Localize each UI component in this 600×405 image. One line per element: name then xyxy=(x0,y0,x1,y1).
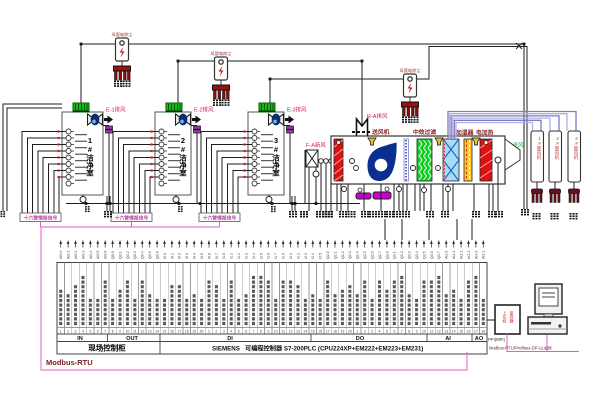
svg-text:AI3.1: AI3.1 xyxy=(482,251,486,259)
svg-text:Q0.6: Q0.6 xyxy=(155,251,159,259)
svg-text:I0.3: I0.3 xyxy=(185,253,189,259)
svg-text:1#管风机: 1#管风机 xyxy=(536,136,542,161)
svg-text:3: 3 xyxy=(75,329,77,333)
svg-text:2: 2 xyxy=(215,329,217,333)
svg-text:风管电除尘: 风管电除尘 xyxy=(400,67,421,74)
svg-text:3#管风机: 3#管风机 xyxy=(573,136,579,161)
svg-text:3: 3 xyxy=(371,329,373,333)
svg-text:3: 3 xyxy=(223,329,225,333)
svg-text:11: 11 xyxy=(430,329,434,333)
svg-text:5: 5 xyxy=(238,329,240,333)
svg-text:4: 4 xyxy=(379,329,381,333)
svg-text:AI2.3: AI2.3 xyxy=(467,251,471,259)
svg-text:I1.7: I1.7 xyxy=(274,253,278,259)
svg-text:I0.2: I0.2 xyxy=(178,253,182,259)
svg-text:8: 8 xyxy=(112,329,114,333)
svg-text:AI2.0: AI2.0 xyxy=(445,251,449,259)
svg-text:13: 13 xyxy=(296,329,300,333)
svg-text:1#洁净室: 1#洁净室 xyxy=(85,136,94,178)
svg-text:AI2.2: AI2.2 xyxy=(459,251,463,259)
svg-text:I2.1: I2.1 xyxy=(289,253,293,259)
svg-text:1: 1 xyxy=(60,329,62,333)
svg-text:17: 17 xyxy=(177,329,181,333)
svg-text:Q0.5: Q0.5 xyxy=(148,251,152,259)
svg-text:Q3.0: Q3.0 xyxy=(385,251,389,259)
svg-text:Q3.7: Q3.7 xyxy=(437,251,441,259)
svg-text:19: 19 xyxy=(192,329,196,333)
svg-text:I1.1: I1.1 xyxy=(230,253,234,259)
svg-text:上位机: 上位机 xyxy=(503,310,508,324)
svg-text:Q3.2: Q3.2 xyxy=(400,251,404,259)
svg-text:2#管风机: 2#管风机 xyxy=(554,136,560,161)
svg-text:14: 14 xyxy=(452,329,456,333)
svg-text:9: 9 xyxy=(416,329,418,333)
svg-text:8: 8 xyxy=(260,329,262,333)
svg-text:Q0.3: Q0.3 xyxy=(133,251,137,259)
svg-text:I1.0: I1.0 xyxy=(222,253,226,259)
svg-text:2: 2 xyxy=(364,329,366,333)
svg-text:18: 18 xyxy=(333,329,337,333)
svg-text:I2.4: I2.4 xyxy=(311,253,315,259)
svg-text:AI3.0: AI3.0 xyxy=(474,251,478,259)
svg-text:现场控制柜: 现场控制柜 xyxy=(88,343,126,353)
svg-text:E-1排风: E-1排风 xyxy=(106,106,126,114)
svg-text:Q2.6: Q2.6 xyxy=(370,251,374,259)
svg-text:AI0.6: AI0.6 xyxy=(104,251,108,259)
svg-text:Modbus-RTU/Profibus-DP-以太网: Modbus-RTU/Profibus-DP-以太网 xyxy=(489,345,552,352)
svg-text:I0.0: I0.0 xyxy=(163,253,167,259)
svg-text:十六管情报信号: 十六管情报信号 xyxy=(24,215,58,222)
svg-text:I2.0: I2.0 xyxy=(282,253,286,259)
svg-text:20: 20 xyxy=(348,329,352,333)
svg-text:13: 13 xyxy=(148,329,152,333)
svg-text:3#洁净室: 3#洁净室 xyxy=(271,136,280,178)
svg-text:I1.3: I1.3 xyxy=(244,253,248,259)
svg-text:I1.5: I1.5 xyxy=(259,253,263,259)
svg-text:18: 18 xyxy=(481,329,485,333)
svg-text:15: 15 xyxy=(311,329,315,333)
svg-text:12: 12 xyxy=(289,329,293,333)
svg-text:5: 5 xyxy=(89,329,91,333)
svg-text:Q2.4: Q2.4 xyxy=(356,251,360,259)
svg-text:AI0.0: AI0.0 xyxy=(59,251,63,259)
svg-text:14: 14 xyxy=(155,329,159,333)
svg-text:2: 2 xyxy=(67,329,69,333)
svg-text:12: 12 xyxy=(437,329,441,333)
svg-text:I1.4: I1.4 xyxy=(252,253,256,259)
svg-text:SIEMENS 可编程控制器 S7-200PLC (CP: SIEMENS 可编程控制器 S7-200PLC (CPU224XP+EM222… xyxy=(212,345,423,353)
svg-text:IN: IN xyxy=(77,336,83,342)
svg-text:Q0.0: Q0.0 xyxy=(111,251,115,259)
svg-text:Q2.3: Q2.3 xyxy=(348,251,352,259)
svg-text:Q2.1: Q2.1 xyxy=(333,251,337,259)
svg-text:E-3排风: E-3排风 xyxy=(287,106,307,114)
svg-text:I0.4: I0.4 xyxy=(193,253,197,259)
svg-text:17: 17 xyxy=(326,329,330,333)
svg-text:7: 7 xyxy=(104,329,106,333)
svg-text:Q0.2: Q0.2 xyxy=(126,251,130,259)
svg-text:Q0.4: Q0.4 xyxy=(141,251,145,259)
svg-text:F-A新风: F-A新风 xyxy=(306,141,326,149)
svg-text:Q3.1: Q3.1 xyxy=(393,251,397,259)
svg-text:Q3.5: Q3.5 xyxy=(422,251,426,259)
svg-text:I0.6: I0.6 xyxy=(207,253,211,259)
svg-text:13: 13 xyxy=(444,329,448,333)
svg-text:中效过滤: 中效过滤 xyxy=(413,128,436,136)
svg-text:16: 16 xyxy=(318,329,322,333)
svg-text:OUT: OUT xyxy=(126,336,138,342)
svg-text:十六管情报信号: 十六管情报信号 xyxy=(203,215,237,222)
svg-text:I2.5: I2.5 xyxy=(319,253,323,259)
svg-text:Modbus-RTU: Modbus-RTU xyxy=(46,358,93,367)
svg-text:十六管情报信号: 十六管情报信号 xyxy=(115,215,149,222)
svg-text:AI0.2: AI0.2 xyxy=(74,251,78,259)
svg-text:加湿器: 加湿器 xyxy=(455,129,474,137)
svg-text:Q2.0: Q2.0 xyxy=(326,251,330,259)
svg-text:监控器: 监控器 xyxy=(510,310,515,324)
svg-text:I0.1: I0.1 xyxy=(170,253,174,259)
svg-text:AO: AO xyxy=(475,336,484,342)
svg-text:4: 4 xyxy=(230,329,232,333)
svg-text:AI0.3: AI0.3 xyxy=(81,251,85,259)
svg-text:16: 16 xyxy=(170,329,174,333)
svg-text:19: 19 xyxy=(340,329,344,333)
svg-text:E-2排风: E-2排风 xyxy=(194,106,214,114)
svg-text:10: 10 xyxy=(422,329,426,333)
svg-text:I2.3: I2.3 xyxy=(304,253,308,259)
svg-text:11: 11 xyxy=(133,329,137,333)
svg-text:I2.2: I2.2 xyxy=(296,253,300,259)
svg-text:9: 9 xyxy=(119,329,121,333)
svg-text:10: 10 xyxy=(274,329,278,333)
svg-text:18: 18 xyxy=(185,329,189,333)
svg-text:AI2.1: AI2.1 xyxy=(452,251,456,259)
svg-text:5: 5 xyxy=(386,329,388,333)
svg-text:9: 9 xyxy=(267,329,269,333)
svg-text:I1.2: I1.2 xyxy=(237,253,241,259)
svg-text:PPI(MPI): PPI(MPI) xyxy=(488,337,506,342)
svg-text:Q3.4: Q3.4 xyxy=(415,251,419,259)
svg-text:17: 17 xyxy=(474,329,478,333)
svg-text:6: 6 xyxy=(97,329,99,333)
svg-text:11: 11 xyxy=(281,329,285,333)
svg-text:4: 4 xyxy=(82,329,84,333)
svg-text:DO: DO xyxy=(356,336,365,342)
svg-text:电加热: 电加热 xyxy=(476,129,494,137)
svg-text:Q2.5: Q2.5 xyxy=(363,251,367,259)
svg-text:I0.5: I0.5 xyxy=(200,253,204,259)
svg-text:20: 20 xyxy=(200,329,204,333)
svg-text:7: 7 xyxy=(252,329,254,333)
svg-text:1: 1 xyxy=(208,329,210,333)
svg-text:I1.6: I1.6 xyxy=(267,253,271,259)
svg-text:8: 8 xyxy=(408,329,410,333)
svg-text:Q2.7: Q2.7 xyxy=(378,251,382,259)
svg-text:16: 16 xyxy=(467,329,471,333)
svg-text:Q3.6: Q3.6 xyxy=(430,251,434,259)
svg-text:Q2.2: Q2.2 xyxy=(341,251,345,259)
svg-text:7: 7 xyxy=(401,329,403,333)
svg-text:15: 15 xyxy=(459,329,463,333)
svg-text:Q3.3: Q3.3 xyxy=(408,251,412,259)
svg-text:风管电除尘: 风管电除尘 xyxy=(112,31,133,38)
svg-text:AI: AI xyxy=(445,336,451,342)
svg-text:DI: DI xyxy=(227,336,233,342)
svg-text:I0.7: I0.7 xyxy=(215,253,219,259)
svg-text:10: 10 xyxy=(125,329,129,333)
svg-text:风管电除尘: 风管电除尘 xyxy=(211,50,232,57)
svg-text:14: 14 xyxy=(303,329,307,333)
svg-text:AI0.4: AI0.4 xyxy=(89,251,93,259)
svg-text:12: 12 xyxy=(140,329,144,333)
svg-text:Q0.1: Q0.1 xyxy=(118,251,122,259)
svg-text:送风机: 送风机 xyxy=(371,128,390,136)
svg-text:6: 6 xyxy=(245,329,247,333)
svg-text:6: 6 xyxy=(393,329,395,333)
svg-text:AI0.5: AI0.5 xyxy=(96,251,100,259)
svg-text:2#洁净室: 2#洁净室 xyxy=(178,136,187,178)
svg-text:15: 15 xyxy=(163,329,167,333)
svg-text:AI0.1: AI0.1 xyxy=(67,251,71,259)
svg-text:R-A排风: R-A排风 xyxy=(367,112,388,120)
svg-text:1: 1 xyxy=(356,329,358,333)
